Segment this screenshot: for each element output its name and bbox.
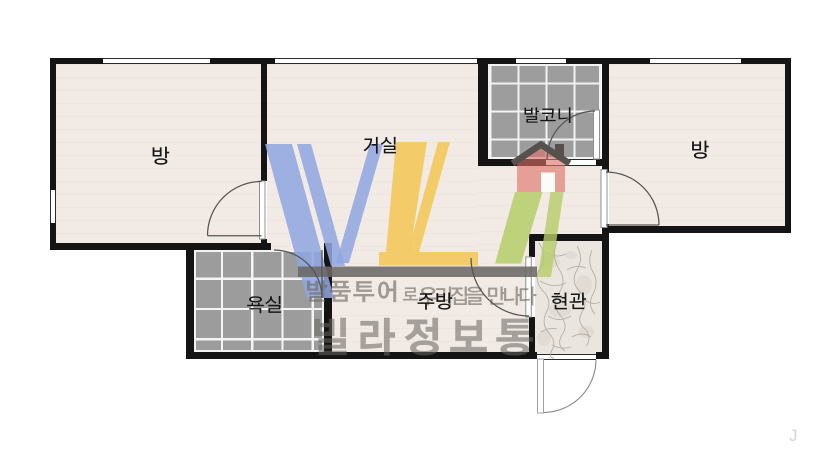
svg-text:J: J	[789, 426, 798, 445]
